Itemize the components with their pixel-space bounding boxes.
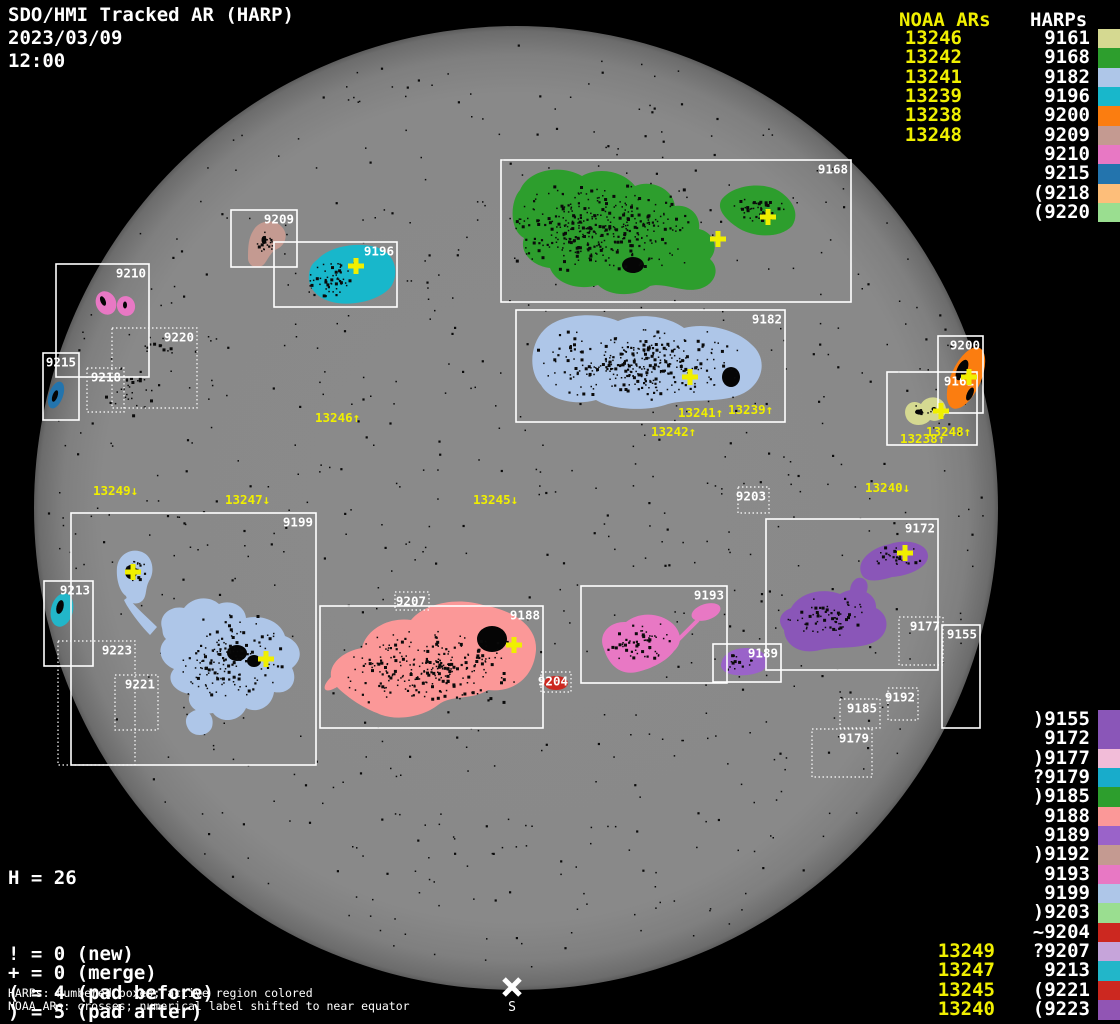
- harp-box-label-9179: 9179: [839, 731, 869, 746]
- harp-box-label-9188: 9188: [510, 608, 540, 623]
- noaa-ar-number: [847, 203, 962, 222]
- noaa-ar-disk-label: 13240↓: [865, 480, 910, 495]
- noaa-ar-number: 13248: [847, 126, 962, 145]
- harp-color-swatch-9192: [1098, 845, 1120, 864]
- harp-list-row: (9220: [847, 203, 1120, 222]
- footnotes: HARPs: numbered boxes; active region col…: [8, 987, 410, 1013]
- harp-color-swatch-9188: [1098, 807, 1120, 826]
- harp-color-swatch-9193: [1098, 865, 1120, 884]
- harp-number: 9168: [962, 48, 1090, 67]
- noaa-ar-disk-label: 13245↓: [473, 492, 518, 507]
- noaa-ar-number: [847, 184, 962, 203]
- swatch-cell: [1090, 29, 1120, 48]
- swatch-cell: [1090, 942, 1120, 961]
- harp-number: 9213: [995, 961, 1090, 980]
- noaa-ar-number: [925, 768, 995, 787]
- harp-color-swatch-9196: [1098, 87, 1120, 106]
- noaa-ar-disk-label: 13247↓: [225, 492, 270, 507]
- harp-map-figure: 9209919692109220921592189168918292009161…: [0, 0, 1120, 1024]
- swatch-cell: [1090, 68, 1120, 87]
- harp-color-swatch-9199: [1098, 884, 1120, 903]
- swatch-cell: [1090, 126, 1120, 145]
- noaa-ar-number: [925, 787, 995, 806]
- harp-color-swatch-9204: [1098, 923, 1120, 942]
- south-label: S: [508, 1000, 516, 1015]
- harp-list-row: 9189: [925, 826, 1120, 845]
- harp-box-label-9185: 9185: [847, 701, 877, 716]
- harp-number: (9223: [995, 1000, 1090, 1019]
- harp-box-label-9177: 9177: [910, 619, 940, 634]
- south-marker: S: [504, 979, 520, 1015]
- harp-box-label-9223: 9223: [102, 643, 132, 658]
- swatch-cell: [1090, 87, 1120, 106]
- harp-box-label-9196: 9196: [364, 244, 394, 259]
- harp-color-swatch-9172: [1098, 729, 1120, 748]
- noaa-ar-number: [925, 845, 995, 864]
- harp-box-label-9221: 9221: [125, 677, 155, 692]
- harp-list-row: 132429168: [847, 48, 1120, 67]
- noaa-ar-number: [925, 710, 995, 729]
- harp-box-label-9168: 9168: [818, 162, 848, 177]
- noaa-ar-disk-label: 13239↑: [728, 402, 773, 417]
- harp-color-swatch-9168: [1098, 48, 1120, 67]
- harp-list-row: 9193: [925, 865, 1120, 884]
- figure-title: SDO/HMI Tracked AR (HARP): [8, 4, 294, 27]
- harp-box-label-9192: 9192: [885, 690, 915, 705]
- swatch-cell: [1090, 749, 1120, 768]
- noaa-ar-disk-label: 13249↓: [93, 483, 138, 498]
- harp-color-swatch-9210: [1098, 145, 1120, 164]
- swatch-cell: [1090, 865, 1120, 884]
- swatch-cell: [1090, 729, 1120, 748]
- noaa-ar-number: 13247: [925, 961, 995, 980]
- harp-box-label-9193: 9193: [694, 588, 724, 603]
- harp-number: 9200: [962, 106, 1090, 125]
- swatch-cell: [1090, 768, 1120, 787]
- harp-box-label-9213: 9213: [60, 583, 90, 598]
- harp-color-swatch-9220: [1098, 203, 1120, 222]
- harp-color-swatch-9182: [1098, 68, 1120, 87]
- harp-color-swatch-9221: [1098, 981, 1120, 1000]
- legend-row: + = 0 (merge): [8, 964, 225, 983]
- harp-box-label-9203: 9203: [736, 489, 766, 504]
- harp-list-row: 9215: [847, 164, 1120, 183]
- harp-list-top-right: 1324691611324291681324191821323991961323…: [847, 29, 1120, 222]
- harp-box-label-9218: 9218: [91, 370, 121, 385]
- swatch-cell: [1090, 164, 1120, 183]
- footnote-line: NOAA ARs: crosses; numerical label shift…: [8, 1000, 410, 1013]
- noaa-ar-disk-label: 13242↑: [651, 424, 696, 439]
- noaa-ar-number: [925, 884, 995, 903]
- harp-box-label-9220: 9220: [164, 330, 194, 345]
- noaa-ar-number: 13240: [925, 1000, 995, 1019]
- harp-color-swatch-9179: [1098, 768, 1120, 787]
- harp-color-swatch-9155: [1098, 710, 1120, 729]
- noaa-ar-number: [925, 729, 995, 748]
- swatch-cell: [1090, 1000, 1120, 1019]
- harp-list-row: ?9179: [925, 768, 1120, 787]
- harp-color-swatch-9203: [1098, 903, 1120, 922]
- noaa-ar-number: [925, 903, 995, 922]
- harp-box-label-9215: 9215: [46, 355, 76, 370]
- harp-color-swatch-9185: [1098, 787, 1120, 806]
- noaa-ar-number: [925, 749, 995, 768]
- swatch-cell: [1090, 981, 1120, 1000]
- harp-list-row: )9185: [925, 787, 1120, 806]
- harp-number: )9192: [995, 845, 1090, 864]
- harp-list-row: 9172: [925, 729, 1120, 748]
- harp-list-row: 13240(9223: [925, 1000, 1120, 1019]
- harp-color-swatch-9189: [1098, 826, 1120, 845]
- harp-color-swatch-9213: [1098, 961, 1120, 980]
- harp-list-row: )9203: [925, 903, 1120, 922]
- swatch-cell: [1090, 845, 1120, 864]
- harp-color-swatch-9218: [1098, 184, 1120, 203]
- harp-box-label-9204: 9204: [538, 674, 568, 689]
- harp-box-label-9189: 9189: [748, 646, 778, 661]
- harp-box-label-9200: 9200: [950, 338, 980, 353]
- swatch-cell: [1090, 184, 1120, 203]
- noaa-ar-number: [925, 865, 995, 884]
- harp-color-swatch-9177: [1098, 749, 1120, 768]
- harp-list-bottom-right: )91559172)9177?9179)918591889189)9192919…: [925, 710, 1120, 1020]
- harp-color-swatch-9215: [1098, 164, 1120, 183]
- harp-number: (9220: [962, 203, 1090, 222]
- noaa-ar-number: 13242: [847, 48, 962, 67]
- noaa-ar-number: [847, 145, 962, 164]
- noaa-ar-number: [925, 807, 995, 826]
- swatch-cell: [1090, 203, 1120, 222]
- noaa-ar-number: [847, 164, 962, 183]
- harp-list-row: )9155: [925, 710, 1120, 729]
- harp-list-row: 132389200: [847, 106, 1120, 125]
- harp-box-label-9210: 9210: [116, 266, 146, 281]
- harp-color-swatch-9223: [1098, 1000, 1120, 1019]
- noaa-ar-disk-label: 13238↑: [900, 431, 945, 446]
- swatch-cell: [1090, 923, 1120, 942]
- harp-number: 9172: [995, 729, 1090, 748]
- harp-list-row: 9188: [925, 807, 1120, 826]
- noaa-ar-disk-label: 13246↑: [315, 410, 360, 425]
- swatch-cell: [1090, 48, 1120, 67]
- swatch-cell: [1090, 710, 1120, 729]
- harp-box-label-9209: 9209: [264, 212, 294, 227]
- figure-time: 12:00: [8, 50, 294, 73]
- harp-number: )9185: [995, 787, 1090, 806]
- noaa-ar-disk-label: 13241↑: [678, 405, 723, 420]
- harp-list-row: 132479213: [925, 961, 1120, 980]
- harp-box-label-9182: 9182: [752, 312, 782, 327]
- harp-color-swatch-9161: [1098, 29, 1120, 48]
- harp-list-row: 9199: [925, 884, 1120, 903]
- swatch-cell: [1090, 826, 1120, 845]
- swatch-cell: [1090, 787, 1120, 806]
- harp-list-row: )9177: [925, 749, 1120, 768]
- swatch-cell: [1090, 903, 1120, 922]
- harp-box-label-9155: 9155: [947, 627, 977, 642]
- harp-box-label-9199: 9199: [283, 515, 313, 530]
- figure-date: 2023/03/09: [8, 27, 294, 50]
- swatch-cell: [1090, 145, 1120, 164]
- harp-color-swatch-9209: [1098, 126, 1120, 145]
- swatch-cell: [1090, 106, 1120, 125]
- harp-number: )9203: [995, 903, 1090, 922]
- noaa-ar-number: [925, 826, 995, 845]
- harp-list-row: )9192: [925, 845, 1120, 864]
- harp-color-swatch-9200: [1098, 106, 1120, 125]
- figure-title-block: SDO/HMI Tracked AR (HARP)2023/03/0912:00: [8, 4, 294, 73]
- harp-color-swatch-9207: [1098, 942, 1120, 961]
- harp-number: 9215: [962, 164, 1090, 183]
- harp-count: H = 26: [8, 869, 225, 888]
- swatch-cell: [1090, 807, 1120, 826]
- swatch-cell: [1090, 961, 1120, 980]
- noaa-ar-number: 13238: [847, 106, 962, 125]
- harp-box-label-9172: 9172: [905, 521, 935, 536]
- swatch-cell: [1090, 884, 1120, 903]
